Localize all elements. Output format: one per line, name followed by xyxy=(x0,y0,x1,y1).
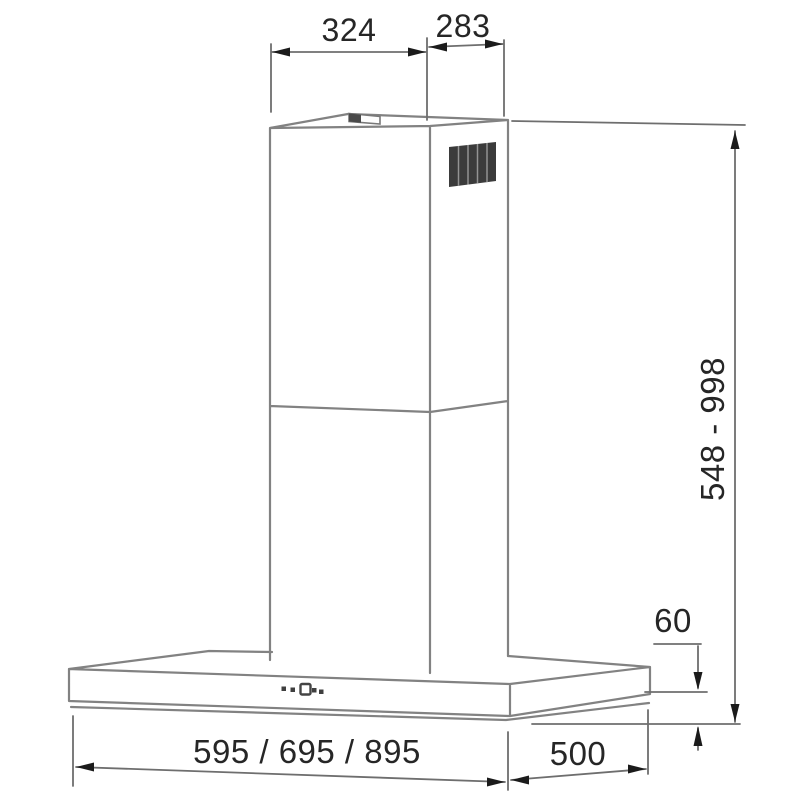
top-outlet-dark xyxy=(349,114,361,123)
hood-dimension-drawing: 324 283 548 - 998 60 595 / 695 / 895 500 xyxy=(0,0,800,800)
dim-top-width-lines xyxy=(271,38,427,120)
arrow-height-top xyxy=(731,131,740,149)
arrow-top-width-left xyxy=(272,48,290,57)
control-buttons xyxy=(282,684,324,695)
dim-label-top-depth: 283 xyxy=(436,8,491,44)
hood-outline xyxy=(69,114,650,720)
arrow-body-widths-left xyxy=(76,763,94,772)
arrow-body-depth-right xyxy=(628,765,646,774)
control-button-power xyxy=(301,684,311,695)
dimension-arrows xyxy=(76,40,740,787)
dimension-lines xyxy=(73,38,745,790)
dim-label-edge-height: 60 xyxy=(654,602,692,639)
control-button-dot xyxy=(282,687,287,692)
dim-label-body-widths: 595 / 695 / 895 xyxy=(193,733,421,770)
arrow-edge-height-bottom xyxy=(694,726,703,746)
hood-dimension-drawing-page: 324 283 548 - 998 60 595 / 695 / 895 500 xyxy=(0,0,800,800)
control-button-dot xyxy=(319,690,324,695)
canopy-outline xyxy=(69,651,650,720)
dim-top-depth-lines xyxy=(429,40,504,116)
dim-label-body-depth: 500 xyxy=(550,735,607,772)
arrow-body-depth-left xyxy=(511,776,529,785)
arrow-top-width-right xyxy=(408,48,426,57)
vent-grille xyxy=(449,142,496,187)
dim-label-top-width: 324 xyxy=(322,12,377,48)
control-button-dot xyxy=(312,688,317,693)
vent-grille-body xyxy=(449,142,496,187)
arrow-edge-height-top xyxy=(694,672,703,690)
arrow-body-widths-right xyxy=(487,778,505,787)
chimney-outline xyxy=(270,114,508,673)
dim-label-height-range: 548 - 998 xyxy=(694,357,731,501)
control-button-dot xyxy=(291,688,296,693)
arrow-height-bottom xyxy=(731,704,740,722)
